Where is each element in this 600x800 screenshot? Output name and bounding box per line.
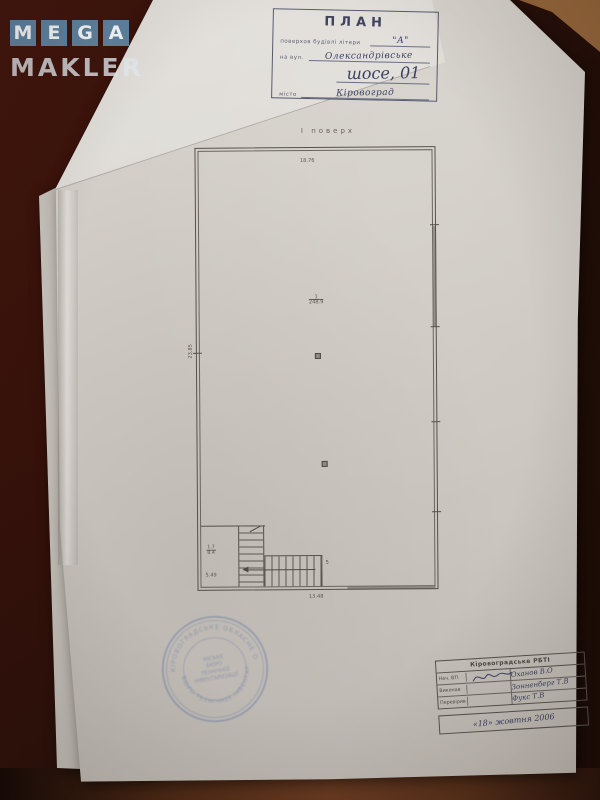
logo-word: MAKLER	[10, 53, 144, 82]
stamp-center-text: МІСЬКЕ БЮРО ТЕХНІЧНОЇ ІНВЕНТАРИЗАЦІЇ	[191, 652, 239, 685]
row-label: Перевірив	[438, 697, 468, 708]
wall-thick-segment	[348, 586, 436, 590]
street-handwritten: Олександрівське	[325, 51, 413, 62]
wall-tick	[193, 353, 202, 354]
floor-plan-drawing: 18.76 23.85 13.48 1 248.9 1.7 8.4 5.49 5	[194, 146, 438, 591]
floor-number-label: І поверх	[258, 127, 398, 135]
city-handwritten: Кіровоград	[336, 88, 394, 99]
logo-letter-tiles: M E G A	[10, 20, 144, 46]
signature-cell	[474, 669, 512, 682]
subtitle-label: поверхов будівлі літери	[280, 38, 360, 46]
logo-tile: G	[72, 20, 98, 46]
column-symbol	[322, 461, 328, 467]
stair-flight-horizontal	[264, 555, 322, 586]
street-handwritten-2: шосе, 01	[346, 63, 420, 83]
logo-tile: M	[10, 20, 36, 46]
stair-width-label: 5.49	[205, 572, 216, 578]
plan-title-block: ПЛАН поверхов будівлі літери "А" на вул.…	[271, 8, 439, 101]
signature-cell	[475, 693, 513, 706]
wall-tick	[431, 326, 440, 327]
dimension-top: 18.76	[300, 158, 315, 164]
footer-title-table: Кіровоградське РБТІ Нач. ВТІ Оханов В.О …	[435, 651, 589, 734]
row-label: Нач. ВТІ	[437, 673, 467, 684]
street-label: на вул.	[280, 54, 304, 61]
paper-crease-left	[58, 190, 78, 565]
wall-tick	[431, 421, 440, 422]
inner-wall-line	[197, 149, 435, 588]
dimension-left: 23.85	[187, 344, 193, 359]
room-area: 248.9	[309, 300, 324, 304]
room-label: 1 248.9	[309, 295, 324, 304]
column-symbol	[315, 353, 321, 359]
stair-room-label: 1.7 8.4	[206, 545, 215, 555]
person-name: Фукс Т.В	[512, 690, 545, 704]
building-letter-handwritten: "А"	[392, 36, 409, 46]
stair-count-label: 5	[326, 559, 329, 565]
row-label: Виконав	[437, 685, 467, 696]
stair-label-denominator: 8.4	[206, 551, 215, 556]
logo-tile: A	[103, 20, 129, 46]
round-ink-stamp: КІРОВОГРАДСЬКЕ ОБЛАСНЕ ОБ'ЄДНАНЕ БЮРО ТЕ…	[149, 603, 281, 735]
photo-of-floor-plan: ПЛАН поверхов будівлі літери "А" на вул.…	[0, 0, 600, 800]
date-handwritten: «18» жовтня 2006	[472, 712, 555, 729]
stair-flight-vertical	[238, 525, 264, 586]
city-label: місто	[279, 91, 297, 98]
logo-tile: E	[41, 20, 67, 46]
wall-tick	[432, 511, 441, 512]
plan-title: ПЛАН	[281, 13, 431, 31]
dimension-bottom: 13.48	[309, 593, 324, 599]
wall-tick	[430, 224, 439, 225]
signature-cell	[474, 681, 512, 694]
mega-makler-watermark: M E G A MAKLER	[10, 20, 144, 82]
